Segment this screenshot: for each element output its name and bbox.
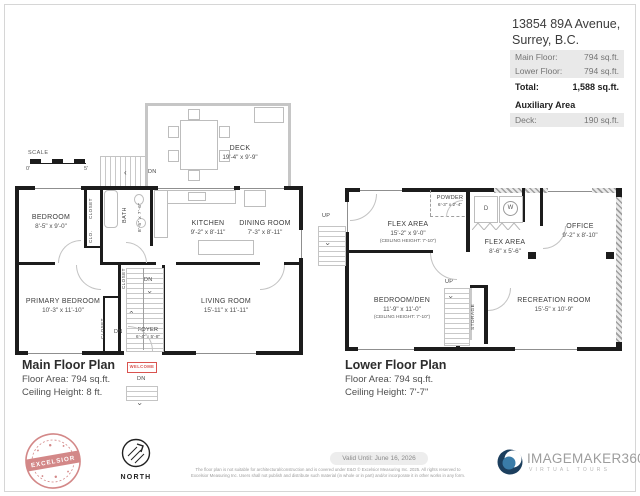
wall: [284, 262, 303, 265]
wall: [15, 262, 55, 265]
scale-max: 5': [84, 166, 88, 172]
stairs-down-label: DN: [144, 277, 153, 283]
auxiliary-area-title: Auxiliary Area: [510, 96, 624, 113]
row-label: Deck:: [515, 115, 537, 125]
room-bath-dims: 8'-5" x 7'-6": [138, 194, 148, 240]
imagemaker360-wordmark: IMAGEMAKER360: [527, 451, 640, 466]
row-value: 190 sq.ft.: [584, 115, 619, 125]
room-dims: 10'-3" x 11'-10": [20, 307, 106, 316]
table-row: Main Floor: 794 sq.ft.: [510, 50, 624, 64]
room-name: FLEX AREA: [356, 220, 460, 230]
room-dining: DINING ROOM 7'-3" x 8'-11": [232, 219, 298, 238]
door-arc: [126, 242, 147, 263]
closet-label: CLO.: [88, 228, 99, 246]
room-flex-area-1: FLEX AREA 15'-2" x 9'-0" (CEILING HEIGHT…: [356, 220, 460, 245]
wall: [176, 262, 260, 265]
stair-arrow-icon: ›: [323, 243, 331, 246]
room-recreation: RECREATION ROOM 15'-5" x 10'-9": [498, 296, 610, 315]
area-summary-table: Main Floor: 794 sq.ft. Lower Floor: 794 …: [510, 50, 624, 127]
lower-floor-ceiling: Ceiling Height: 7'-7": [345, 387, 428, 398]
property-address: 13854 89A Avenue, Surrey, B.C.: [512, 16, 632, 49]
room-name: BEDROOM: [20, 213, 82, 223]
window: [196, 351, 256, 355]
lower-floor-area: Floor Area: 794 sq.ft.: [345, 374, 433, 385]
disclaimer-line2: Excelsior Measuring Inc. Users shall not…: [168, 473, 488, 479]
room-kitchen: KITCHEN 9'-2" x 8'-11": [176, 219, 240, 238]
bifold-door: [472, 222, 522, 230]
wall: [100, 188, 103, 262]
room-dims: 9'-2" x 8'-11": [176, 229, 240, 238]
address-line2: Surrey, B.C.: [512, 32, 632, 48]
disclaimer: The floor plan is not suitable for archi…: [168, 467, 488, 480]
bbq-grill: [254, 107, 284, 123]
window: [360, 188, 402, 192]
stairs-up-label: UP: [322, 213, 330, 219]
room-name: OFFICE: [544, 222, 616, 232]
exterior-stairs: [318, 226, 346, 266]
room-dims: 7'-3" x 8'-11": [232, 229, 298, 238]
row-label: Main Floor:: [515, 52, 558, 62]
room-name: BEDROOM/DEN: [348, 296, 456, 306]
room-powder: POWDER 6'-3" x 2'-4": [430, 195, 470, 209]
closet-label: CLOSET: [88, 192, 99, 226]
row-label: Total:: [515, 82, 539, 92]
room-name: RECREATION ROOM: [498, 296, 610, 306]
table-row: Deck: 190 sq.ft.: [510, 113, 624, 127]
door-arc: [430, 253, 457, 280]
deck-chair: [168, 126, 179, 138]
stair-arrow-icon: ›: [145, 291, 153, 294]
room-name: DINING ROOM: [232, 219, 298, 229]
room-name: PRIMARY BEDROOM: [20, 297, 106, 307]
room-name: FLEX AREA: [468, 238, 542, 248]
deck-stairs: [100, 156, 146, 190]
table-row: Lower Floor: 794 sq.ft.: [510, 64, 624, 78]
main-floor-ceiling: Ceiling Height: 8 ft.: [22, 387, 102, 398]
wall: [145, 103, 291, 106]
room-dims: 15'-5" x 10'-9": [498, 306, 610, 315]
wall: [84, 246, 103, 248]
room-name: LIVING ROOM: [178, 297, 274, 307]
north-label: NORTH: [112, 474, 160, 481]
wall: [616, 188, 622, 197]
window: [28, 351, 82, 355]
stairs-down-label: DN: [137, 376, 146, 382]
scale-min: 0': [26, 166, 30, 172]
wall: [616, 342, 622, 351]
imagemaker360-logo-icon: [497, 449, 523, 475]
room-dims: 19'-4" x 9'-9": [200, 154, 280, 163]
kitchen-counter: [154, 190, 168, 238]
stair-arrow-icon: ›: [127, 311, 135, 314]
scale-ruler: [30, 159, 86, 164]
lower-floor-title: Lower Floor Plan: [345, 358, 446, 372]
north-compass-icon: [121, 438, 151, 468]
room-name: KITCHEN: [176, 219, 240, 229]
room-dims: 8'-5" x 9'-0": [20, 223, 82, 232]
wall: [345, 250, 433, 253]
wall: [15, 186, 19, 355]
excelsior-stamp-icon: EXCELSIOR: [19, 427, 86, 494]
room-name: POWDER: [430, 195, 470, 203]
window: [358, 347, 414, 351]
row-label: Lower Floor:: [515, 66, 562, 76]
room-dims: 6'-3" x 2'-4": [430, 203, 470, 210]
wall-stub: [606, 252, 614, 259]
main-floor-area: Floor Area: 794 sq.ft.: [22, 374, 110, 385]
table-row-total: Total: 1,588 sq.ft.: [510, 78, 624, 96]
deck-chair: [188, 170, 200, 181]
kitchen-sink: [188, 192, 206, 201]
wall: [299, 186, 303, 355]
row-value: 1,588 sq.ft.: [572, 82, 619, 92]
wall: [84, 188, 87, 248]
door-arc: [350, 194, 377, 221]
room-office: OFFICE 9'-2" x 8'-10": [544, 222, 616, 241]
room-bedroom-den: BEDROOM/DEN 11'-9" x 11'-0" (CEILING HEI…: [348, 296, 456, 321]
stairs-down-label: DN: [114, 329, 123, 335]
deck-chair: [168, 150, 179, 162]
valid-until-badge: Valid Until: June 16, 2026: [330, 452, 428, 465]
wall: [150, 188, 153, 246]
door-arc: [58, 240, 81, 263]
room-dims: 11'-9" x 11'-0": [348, 306, 456, 315]
deck-chair: [219, 126, 230, 138]
closet-label: CLOSET: [121, 266, 132, 292]
door-arc: [76, 265, 101, 290]
dryer: D: [474, 196, 498, 223]
room-living: LIVING ROOM 15'-11" x 11'-11": [178, 297, 274, 316]
floor-plan-page: 13854 89A Avenue, Surrey, B.C. Main Floo…: [0, 0, 640, 496]
room-bath-name: BATH: [122, 198, 132, 232]
kitchen-island: [198, 240, 254, 255]
closet-label: CLOSET: [100, 314, 111, 344]
stairs-down-label: DN: [148, 169, 157, 175]
row-value: 794 sq.ft.: [584, 66, 619, 76]
room-dims: 15'-2" x 9'-0": [356, 230, 460, 239]
door-arc: [260, 265, 285, 290]
room-dims: 9'-2" x 8'-10": [544, 232, 616, 241]
room-dims: 8'-6" x 5'-6": [468, 248, 542, 257]
wall-hatched: [616, 188, 622, 351]
storage-label: STORAGE: [471, 294, 483, 340]
room-bedroom: BEDROOM 8'-5" x 9'-0": [20, 213, 82, 232]
room-note: (CEILING HEIGHT: 7'-10"): [356, 239, 460, 246]
room-deck: DECK 19'-4" x 9'-9": [200, 144, 280, 163]
window: [515, 347, 577, 351]
stair-arrow-icon: ›: [135, 403, 143, 406]
room-note: (CEILING HEIGHT: 7'-10"): [348, 315, 456, 322]
washer: W: [503, 201, 518, 216]
room-name: DECK: [200, 144, 280, 154]
room-flex-area-2: FLEX AREA 8'-6" x 5'-6": [468, 238, 542, 257]
window: [548, 188, 592, 193]
main-floor-title: Main Floor Plan: [22, 358, 115, 372]
scale-label: SCALE: [28, 150, 49, 156]
address-line1: 13854 89A Avenue,: [512, 16, 632, 32]
row-value: 794 sq.ft.: [584, 52, 619, 62]
room-dims: 15'-11" x 11'-11": [178, 307, 274, 316]
wall: [288, 103, 291, 188]
room-primary-bedroom: PRIMARY BEDROOM 10'-3" x 11'-10": [20, 297, 106, 316]
wall: [540, 188, 543, 226]
stairs-up-label: UP: [445, 279, 453, 285]
window: [299, 230, 303, 258]
imagemaker360-tagline: VIRTUAL TOURS: [529, 467, 610, 473]
window: [35, 186, 81, 190]
deck-chair: [188, 109, 200, 120]
front-steps: [126, 386, 158, 401]
stair-arrow-icon: ‹: [124, 169, 127, 177]
fridge: [244, 190, 266, 207]
bathtub: [104, 190, 118, 228]
welcome-mat: WELCOME: [127, 362, 157, 373]
